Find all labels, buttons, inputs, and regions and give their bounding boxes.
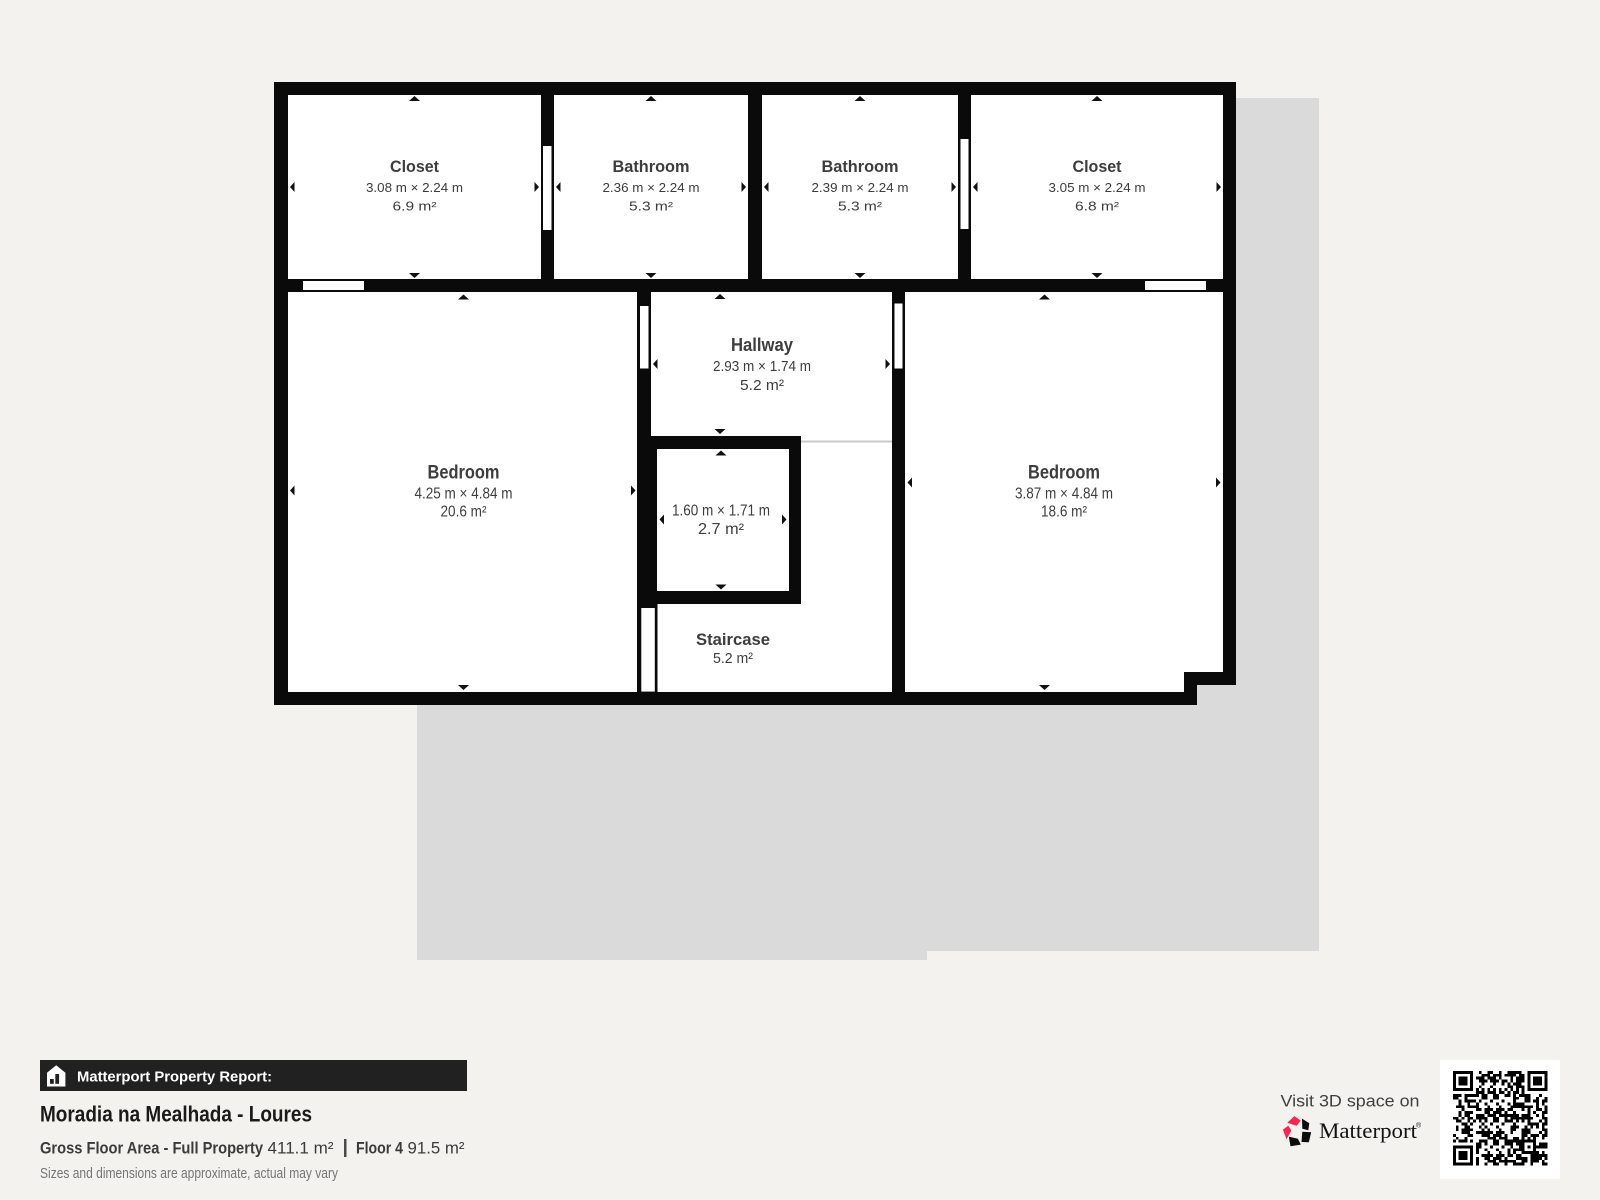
svg-text:2.93 m × 1.74 m: 2.93 m × 1.74 m [713, 358, 811, 375]
svg-text:5.3 m²: 5.3 m² [629, 199, 674, 214]
svg-text:1.60 m × 1.71 m: 1.60 m × 1.71 m [672, 503, 770, 520]
svg-text:Bathroom: Bathroom [822, 157, 899, 176]
svg-text:Visit 3D space on: Visit 3D space on [1281, 1093, 1420, 1111]
svg-text:2.36 m × 2.24 m: 2.36 m × 2.24 m [603, 180, 700, 195]
svg-text:Closet: Closet [390, 157, 439, 176]
svg-text:Floor 491.5 m²: Floor 491.5 m² [356, 1139, 465, 1158]
svg-text:Matterport Property Report:: Matterport Property Report: [77, 1069, 272, 1086]
svg-text:3.87 m × 4.84 m: 3.87 m × 4.84 m [1015, 486, 1113, 503]
svg-text:3.08 m × 2.24 m: 3.08 m × 2.24 m [366, 180, 463, 195]
svg-text:Gross Floor Area - Full Proper: Gross Floor Area - Full Property411.1 m² [40, 1139, 334, 1158]
svg-text:18.6 m²: 18.6 m² [1041, 504, 1087, 521]
svg-text:Bedroom: Bedroom [1028, 463, 1100, 484]
svg-text:2.39 m × 2.24 m: 2.39 m × 2.24 m [812, 180, 909, 195]
svg-text:Bathroom: Bathroom [613, 157, 690, 176]
svg-text:Moradia na Mealhada - Loures: Moradia na Mealhada - Loures [40, 1102, 312, 1127]
svg-text:5.3 m²: 5.3 m² [838, 199, 883, 214]
svg-text:Bedroom: Bedroom [428, 463, 500, 484]
svg-text:20.6 m²: 20.6 m² [441, 504, 487, 521]
svg-text:5.2 m²: 5.2 m² [713, 650, 753, 667]
svg-text:4.25 m × 4.84 m: 4.25 m × 4.84 m [415, 486, 513, 503]
svg-text:Sizes and dimensions are appro: Sizes and dimensions are approximate, ac… [40, 1166, 339, 1182]
svg-text:Hallway: Hallway [731, 335, 793, 355]
svg-text:Staircase: Staircase [696, 630, 770, 649]
svg-text:5.2 m²: 5.2 m² [740, 377, 784, 394]
svg-text:Matterport: Matterport [1319, 1118, 1418, 1143]
svg-text:3.05 m × 2.24 m: 3.05 m × 2.24 m [1049, 180, 1146, 195]
svg-text:2.7 m²: 2.7 m² [698, 521, 744, 538]
svg-text:®: ® [1416, 1122, 1422, 1130]
svg-text:6.8 m²: 6.8 m² [1075, 199, 1120, 214]
svg-text:6.9 m²: 6.9 m² [393, 199, 438, 214]
svg-text:Closet: Closet [1073, 157, 1122, 176]
